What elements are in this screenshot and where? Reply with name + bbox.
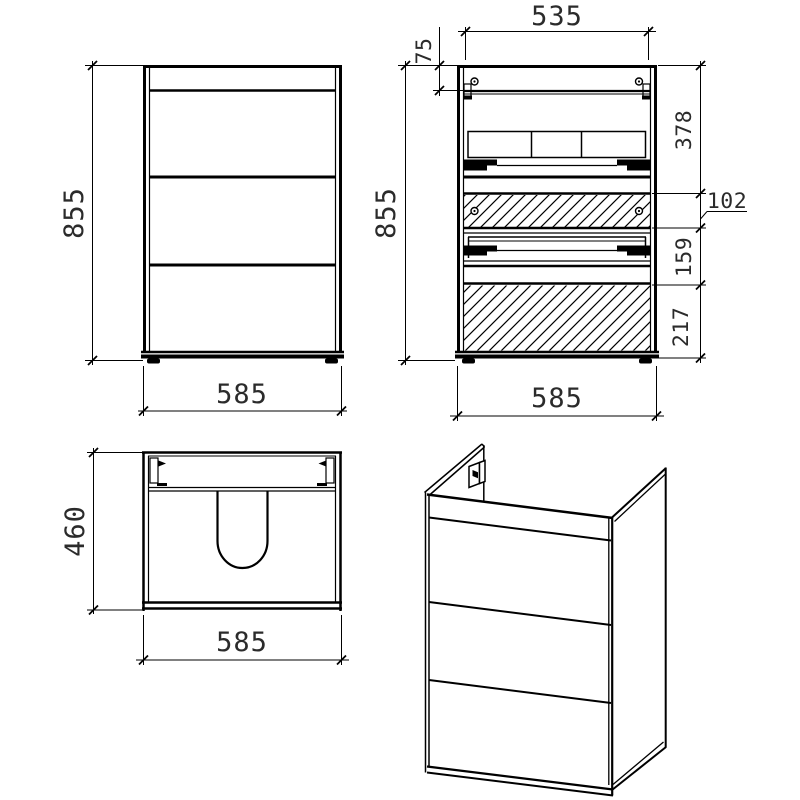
- foot-right: [325, 359, 338, 364]
- section-upper-drawer-front: [463, 195, 651, 228]
- dim-section-top-width: 535: [531, 1, 583, 32]
- dim-section-height: 855: [371, 187, 402, 239]
- vanity-cabinet-drawing: 855 585: [0, 0, 800, 800]
- hatch-band-upper: [464, 195, 650, 227]
- dim-front-width: 585: [216, 379, 268, 410]
- dim-front-height: 855: [59, 187, 90, 239]
- dim-section-lower-drawer-front: 217: [669, 307, 694, 347]
- dim-plan-depth: 460: [60, 505, 91, 557]
- hatch-band-lower: [464, 286, 650, 351]
- bottom-plinth: [141, 355, 344, 359]
- technical-drawing-canvas: 855 585: [0, 0, 800, 800]
- dim-section-hanger-offset: 75: [412, 38, 437, 65]
- dim-section-upper-compartment: 378: [672, 110, 697, 150]
- dim-plan-width: 585: [216, 627, 268, 658]
- foot-left: [147, 359, 160, 364]
- foot-left: [462, 359, 475, 364]
- foot-right: [639, 359, 652, 364]
- bottom-plinth: [455, 355, 659, 359]
- dim-section-upper-drawer-front: 102: [707, 189, 747, 214]
- dim-section-middle-compartment: 159: [672, 237, 697, 277]
- dim-section-width: 585: [531, 383, 583, 414]
